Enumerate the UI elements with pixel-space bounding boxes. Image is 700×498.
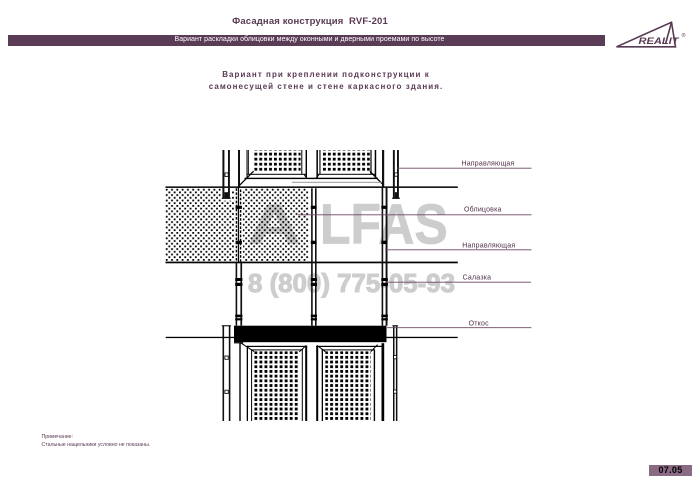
svg-text:8 (800) 775-05-93: 8 (800) 775-05-93 [248,268,455,298]
svg-text:Откос: Откос [469,320,489,327]
svg-text:Салазка: Салазка [463,275,492,282]
svg-text:Направляющая: Направляющая [461,160,514,167]
svg-text:LFAS: LFAS [320,192,448,255]
svg-text:Направляющая: Направляющая [462,242,515,249]
svg-text:Облицовка: Облицовка [464,206,502,214]
